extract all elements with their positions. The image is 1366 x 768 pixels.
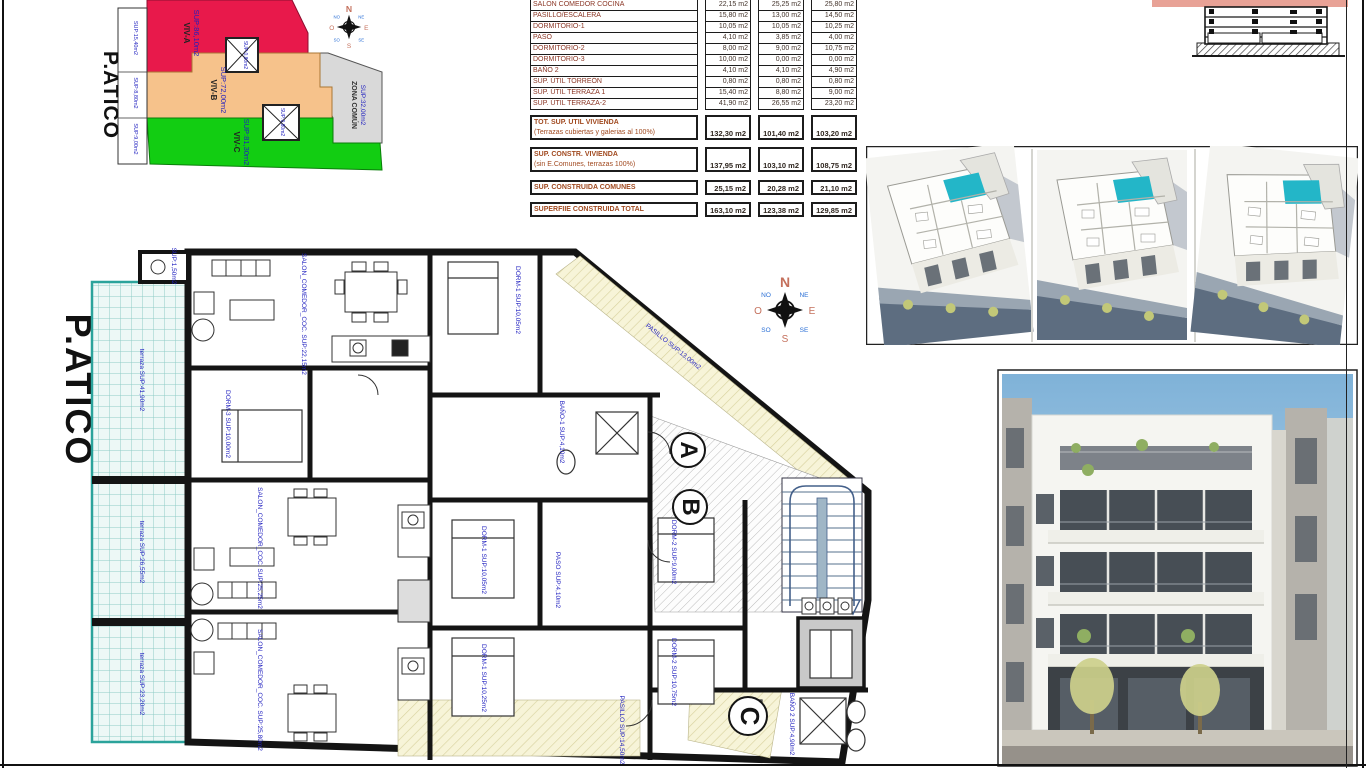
room-label: terraza SUP:23,20m2: [138, 653, 145, 716]
table-total-general: SUPERFIIE CONSTRUIDA TOTAL 163,10 m2 123…: [530, 202, 852, 217]
compass-ne: NE: [358, 14, 364, 19]
total-label: TOT. SUP. UTIL VIVIENDA: [532, 117, 696, 128]
facade-render-panel: [996, 368, 1360, 768]
total-label-box: SUP. CONSTR. VIVIENDA (sin E.Comunes, te…: [530, 147, 698, 172]
room-label: terraza SUP:26,55m2: [138, 521, 145, 584]
neighbor-building-left: [1002, 398, 1032, 734]
room-label: SUP:1,50m2: [170, 248, 177, 285]
compass-n: N: [346, 4, 352, 14]
total-label-box: TOT. SUP. UTIL VIVIENDA (Terrazas cubier…: [530, 115, 698, 140]
room-label: DORM-1 SUP:10,05m2: [480, 526, 487, 594]
table-total-util: TOT. SUP. UTIL VIVIENDA (Terrazas cubier…: [530, 115, 852, 140]
table-total-comunes: SUP. CONSTRUIDA COMUNES 25,15 m2 20,28 m…: [530, 180, 852, 195]
site-torreon-a-label: SUP:0,80m2: [242, 41, 248, 70]
compass-se: SE: [358, 37, 364, 42]
floor-plan: P.ATICO: [30, 235, 900, 768]
unit-letter-a: A: [675, 441, 702, 458]
site-viv-c-sup: SUP:81,30m2: [242, 119, 251, 166]
total-label: SUP. CONSTRUIDA COMUNES: [532, 182, 696, 193]
total-cell: 137,95 m2: [705, 147, 751, 172]
staircase: [782, 478, 862, 614]
site-viv-a-name: VIV-A: [182, 23, 191, 44]
unit-mark-c: C: [729, 697, 767, 735]
sidewalk: [1002, 730, 1353, 746]
site-plan-title: P.ATICO: [99, 51, 122, 139]
render-cut-band: [1152, 0, 1348, 7]
site-terraza-label-c: SUP:9,00m2: [132, 123, 138, 154]
room-label: SALON_COMEDOR_COC. SUP:25,25m2: [256, 487, 263, 609]
page-border-inner-right: [1346, 0, 1347, 768]
site-zona-comun-sup: SUP:32,00m2: [359, 85, 366, 126]
total-cell: 108,75 m2: [811, 147, 857, 172]
compass-rose-site: N S E O NE SE SO NO: [329, 4, 369, 50]
neighbor-building-right: [1285, 408, 1353, 734]
facade-building: [1032, 415, 1286, 730]
table-total-constr: SUP. CONSTR. VIVIENDA (sin E.Comunes, te…: [530, 147, 852, 172]
total-cell: 103,10 m2: [758, 147, 804, 172]
total-cell: 163,10 m2: [705, 202, 751, 217]
site-viv-b-name: VIV-B: [209, 80, 218, 101]
compass-s: S: [347, 43, 352, 50]
total-cell: 101,40 m2: [758, 115, 804, 140]
site-terraza-label-a: SUP:15,40m2: [132, 21, 138, 55]
wc-top-left: [140, 252, 188, 282]
room-label: PASILLO SUP:14,50m2: [618, 696, 625, 765]
total-cell: 103,20 m2: [811, 115, 857, 140]
area-table-rows: SALON COMEDOR COCINA 22,15 m2 25,25 m2 2…: [530, 0, 852, 110]
laundry-fixtures: [802, 598, 852, 614]
unit-mark-a: A: [671, 433, 705, 467]
site-plan-diagram: SUP:15,40m2 SUP:8,80m2 SUP:9,00m2 SUP:0,…: [85, 0, 415, 200]
site-zona-comun-name: ZONA COMÚN: [350, 81, 359, 129]
terraza-divider-wall: [92, 618, 188, 626]
compass-e: E: [364, 25, 369, 32]
terraza-divider-wall: [92, 476, 188, 484]
aerial-render-3: [1190, 146, 1358, 345]
page-border-bottom: [0, 764, 1366, 766]
total-label-box: SUP. CONSTRUIDA COMUNES: [530, 180, 698, 195]
unit-mark-b: B: [673, 490, 707, 524]
total-cell: 21,10 m2: [811, 180, 857, 195]
room-label: BAÑO-1 SUP:4,10m2: [558, 401, 567, 464]
unit-letter-b: B: [677, 498, 704, 515]
compass-no: NO: [334, 14, 341, 19]
table-row-label: SUP. ÚTIL TERRAZA-2: [530, 98, 698, 110]
compass-so: SO: [334, 37, 341, 42]
compass-o: O: [329, 25, 334, 32]
total-cell: 132,30 m2: [705, 115, 751, 140]
table-cell: 23,20 m2: [811, 98, 857, 110]
total-label: SUPERFIIE CONSTRUIDA TOTAL: [532, 204, 696, 215]
room-label: DORM-3 SUP:10,00m2: [224, 390, 231, 458]
total-label: SUP. CONSTR. VIVIENDA: [532, 149, 696, 160]
site-torreon-b-label: SUP:0,80m2: [279, 108, 285, 137]
page-border-right: [1362, 0, 1364, 768]
total-sublabel: (Terrazas cubiertas y galerias al 100%): [532, 128, 696, 138]
room-label: terraza SUP:41,90m2: [138, 349, 145, 412]
site-viv-a-sup: SUP:86,10m2: [192, 10, 201, 57]
table-cell: 41,90 m2: [705, 98, 751, 110]
room-label: DORM-2 SUP:9,00m2: [670, 520, 677, 585]
total-sublabel: (sin E.Comunes, terrazas 100%): [532, 160, 696, 170]
site-terraza-label-b: SUP:8,80m2: [132, 77, 138, 108]
aerial-render-2: [1037, 150, 1187, 340]
site-viv-b-sup: SUP:72,00m2: [219, 67, 228, 114]
room-label: SALON_COMEDOR_COC. SUP:22,15m2: [300, 253, 307, 375]
page-border-left: [2, 0, 4, 768]
site-viv-c-name: VIV-C: [232, 132, 241, 153]
road: [1002, 746, 1353, 764]
total-cell: 25,15 m2: [705, 180, 751, 195]
aerial-renders-panel: [866, 146, 1358, 345]
room-label: BAÑO 2 SUP:4,90m2: [788, 693, 797, 756]
room-label: DORM-2 SUP:10,75m2: [670, 638, 677, 706]
pasillo-hatch-bottom: [398, 700, 640, 756]
section-ground-hatch: [1197, 43, 1339, 56]
room-label: SALON_COMEDOR_COC. SUP:25,80m2: [256, 629, 263, 751]
architectural-plan-sheet: SUP:15,40m2 SUP:8,80m2 SUP:9,00m2 SUP:0,…: [0, 0, 1366, 768]
total-cell: 123,38 m2: [758, 202, 804, 217]
total-cell: 129,85 m2: [811, 202, 857, 217]
room-label: DORM-1 SUP:10,25m2: [480, 644, 487, 712]
area-summary-table: SALON COMEDOR COCINA 22,15 m2 25,25 m2 2…: [530, 0, 852, 217]
total-cell: 20,28 m2: [758, 180, 804, 195]
site-torreon-a: [226, 38, 258, 72]
elevator: [798, 618, 864, 688]
room-label: PASO SUP:4,10m2: [554, 552, 561, 609]
building-section-drawing: [1150, 0, 1350, 64]
total-label-box: SUPERFIIE CONSTRUIDA TOTAL: [530, 202, 698, 217]
table-cell: 26,55 m2: [758, 98, 804, 110]
unit-letter-c: C: [735, 707, 765, 726]
room-label: DORM-1 SUP:10,05m2: [514, 266, 521, 334]
